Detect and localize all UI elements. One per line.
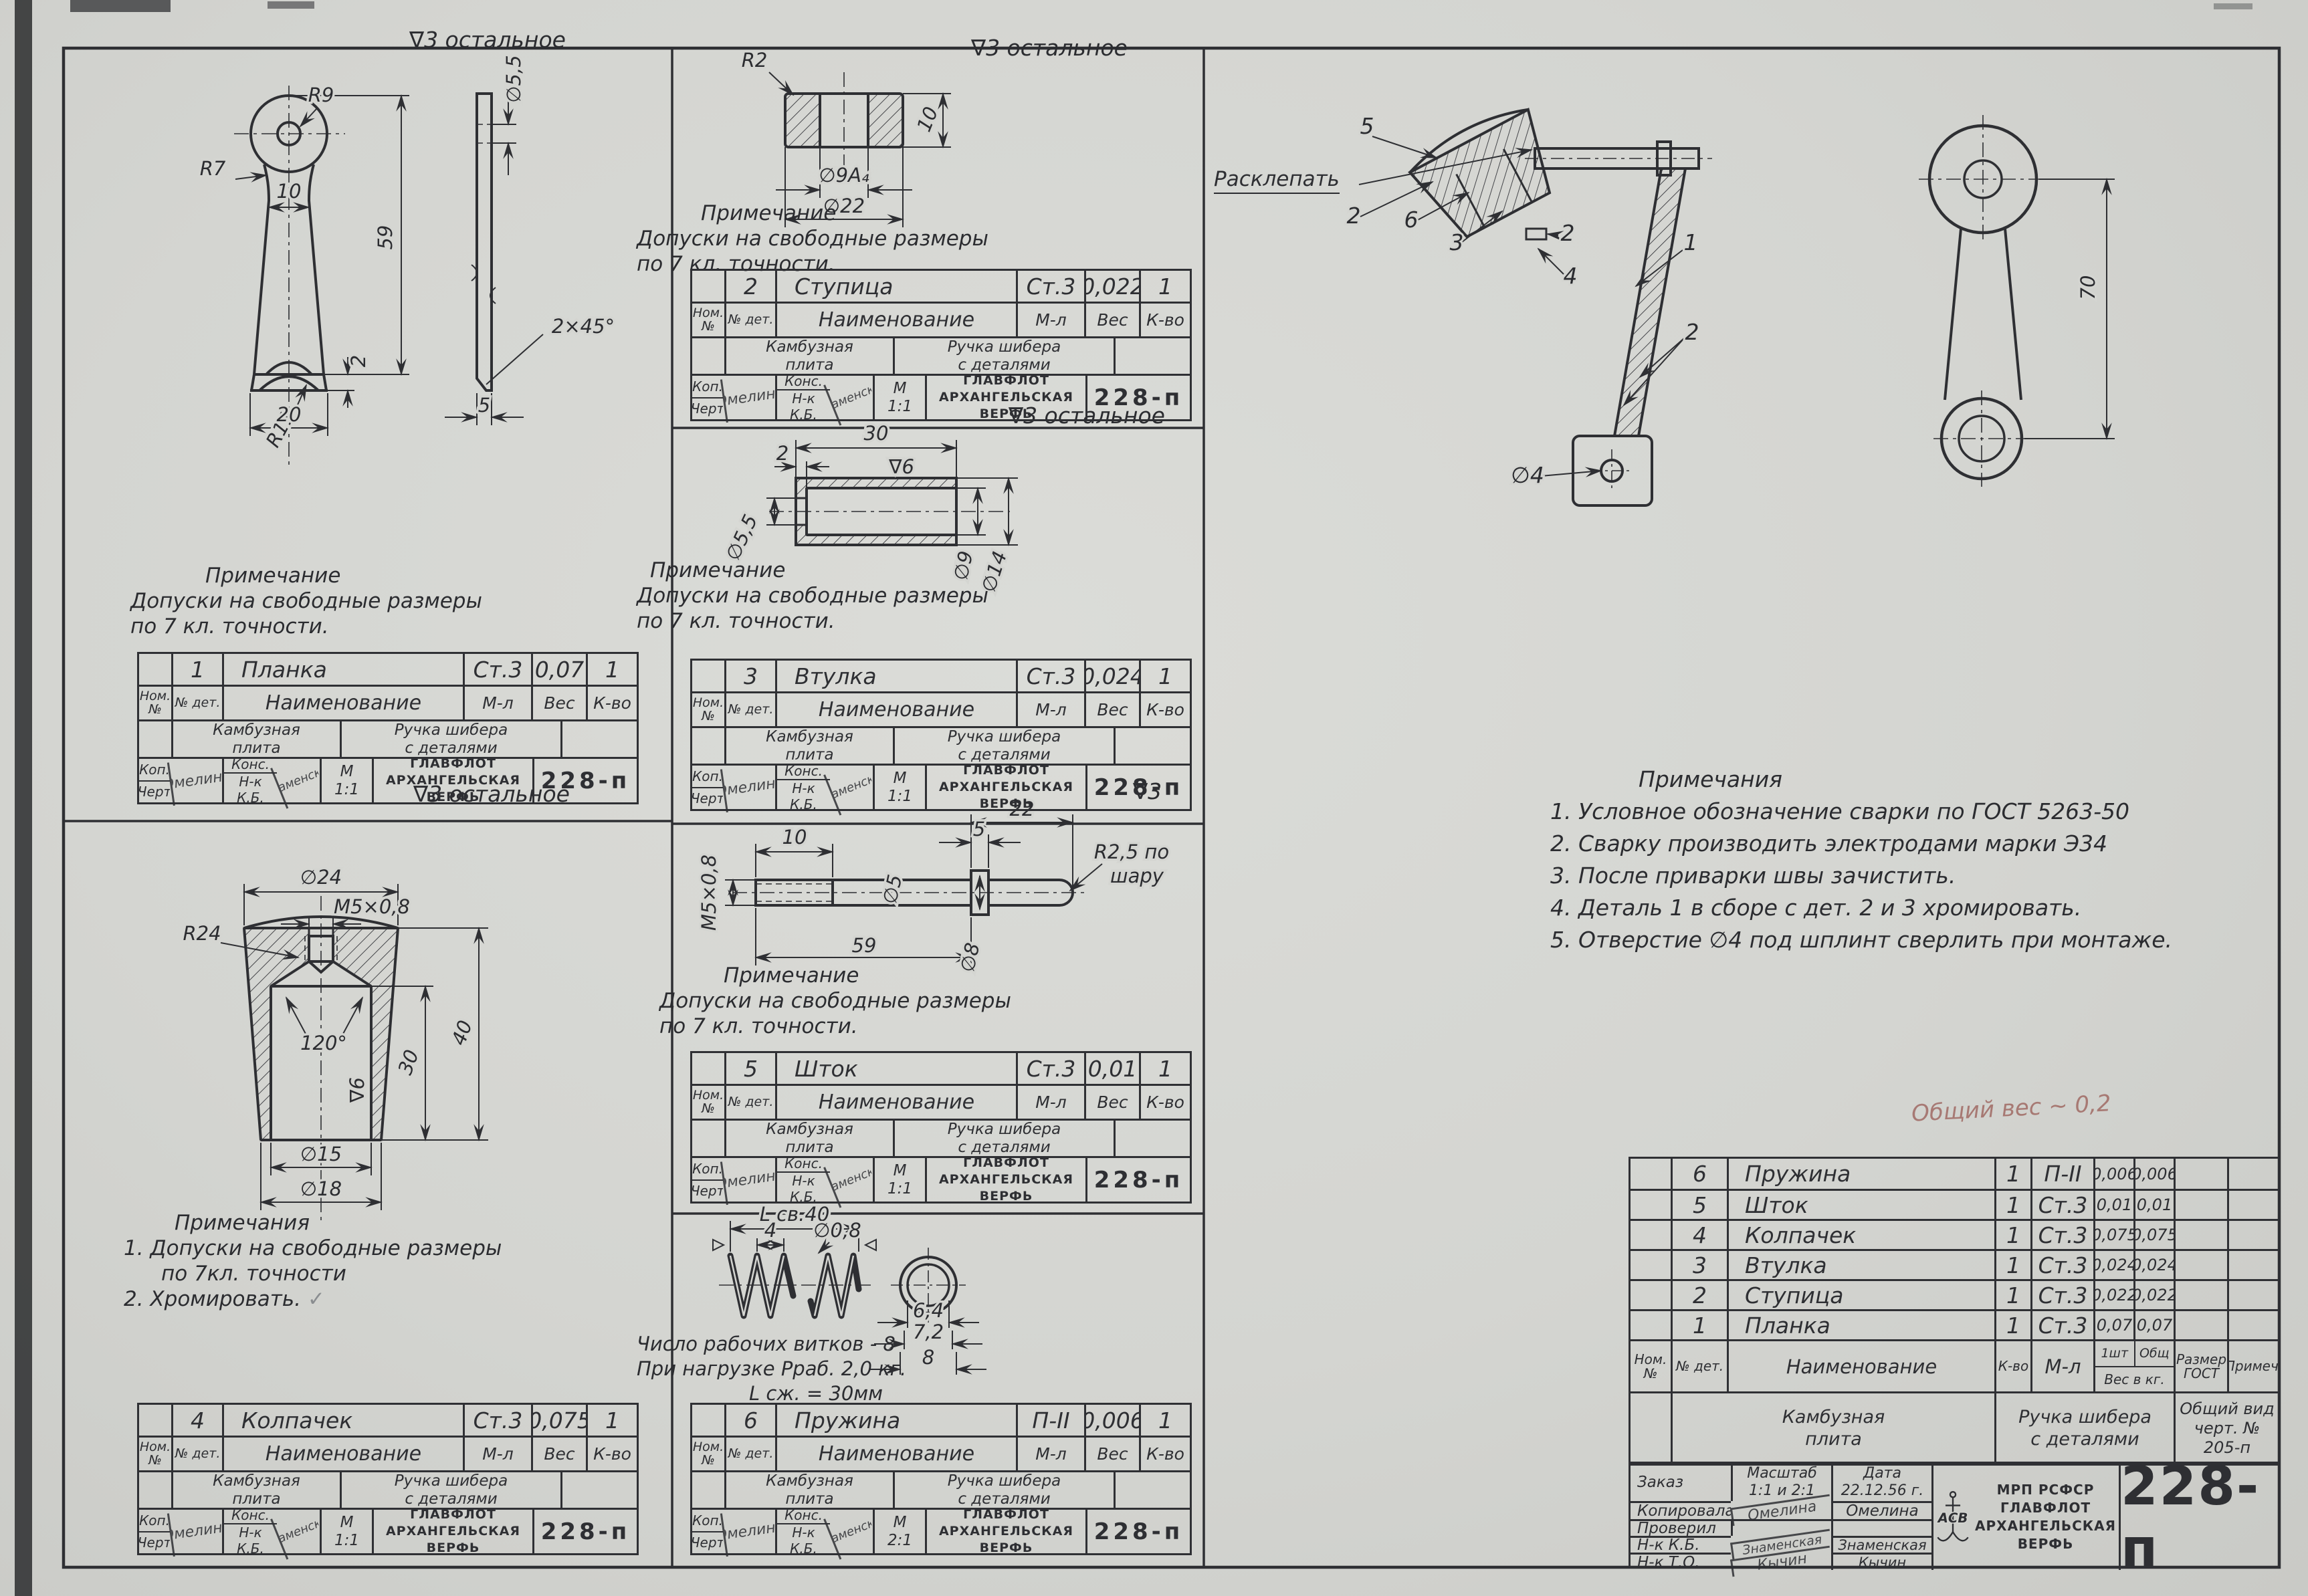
assembly-cell: Ручка шиберас деталями [340,721,560,757]
part-qty: 1 [1139,1405,1190,1436]
scale-value: 1:1 [887,1180,912,1198]
parts-list-row: 4 Колпачек 1 Ст.3 0,075 0,075 [1631,1219,2279,1249]
finish-note-left: ∇3 остальное [409,27,566,53]
row-ves1: 0,01 [2093,1191,2133,1219]
signature-kop: Омелина [720,762,778,812]
note-item-text: 2. Хромировать. [124,1287,301,1311]
role-kons: Конс. [777,766,830,779]
cell-empty [139,721,171,757]
col-nom: Ном. № [139,1438,171,1470]
part-table-kolpachek: 4 Колпачек Ст.3 0,075 1 Ном. № № дет. На… [137,1403,639,1555]
dim-shtok-ball-2: шару [1110,865,1164,887]
assembly-cell: Ручка шиберас деталями [340,1472,560,1508]
dim-asm-d4: ∅4 [1511,462,1544,488]
col-nom: Ном. № [692,1086,724,1119]
drawing-code: 228-п [1085,376,1190,419]
org-line1: ГЛАВФЛОТ [963,1158,1049,1171]
part-weight: 0,022 [1084,271,1139,302]
dim-pruzhina-pitch: 4 [764,1219,776,1242]
drawing-code: 228-п [1085,1158,1190,1202]
project-line1: Камбузная [766,338,853,356]
org-line2: АРХАНГЕЛЬСКАЯ [939,1171,1073,1188]
col-name: Наименование [775,1086,1016,1119]
dim-planka-thk: 5 [478,394,490,417]
parts-list-row: 2 Ступица 1 Ст.3 0,022 0,022 [1631,1279,2279,1309]
col-material: М-л [463,1438,531,1470]
dim-stupitsa-bore: ∅9А₄ [819,164,869,187]
org-line3: ВЕРФЬ [980,1540,1033,1553]
parts-list: 6 Пружина 1 П-II 0,006 0,006 5 Шток 1 Ст… [1629,1157,2281,1466]
row-ves1: 0,07 [2093,1311,2133,1339]
project-cell: Камбузнаяплита [171,1472,340,1508]
dim-shtok-l1: 10 [782,826,807,848]
drawing-number: 228-п [2119,1464,2281,1570]
col-det: № дет. [724,1438,775,1470]
dim-kolpachek-od: ∅24 [300,866,342,889]
hdr-nom: Ном. № [1631,1341,1671,1391]
finish-mark-kolpachek: ∇6 [346,1077,369,1103]
row-qty: 1 [1994,1251,2030,1279]
org-line2: АРХАНГЕЛЬСКАЯ [939,1523,1073,1540]
cell-empty [1114,1121,1190,1156]
assembly-cell: Ручка шиберас деталями [893,338,1114,374]
org-cell: ГЛАВФЛОТАРХАНГЕЛЬСКАЯВЕРФЬ [925,766,1085,809]
project-cell: Камбузнаяплита [171,721,340,757]
hdr-ves-obshch: Общ [2134,1341,2174,1366]
col-weight: Вес [1084,1086,1139,1119]
col-det: № дет. [171,687,222,719]
note-item: 2. Хромировать. ✓ [124,1286,502,1312]
note-line: Допуски на свободные размеры [659,988,1011,1014]
hdr-primech: Примеч. [2227,1341,2279,1391]
dim-shtok-d: ∅5 [878,873,906,906]
part-table-vtulka: 3 Втулка Ст.3 0,024 1 Ном. № № дет. Наим… [690,659,1192,811]
note-title: Примечание [205,563,482,588]
part-material: Ст.3 [463,654,531,685]
drawing-code: 228-п [532,759,637,802]
dim-planka-neck: 10 [277,180,302,203]
row-det: 5 [1671,1191,1727,1219]
role-kons: Конс. [777,1510,830,1523]
col-weight: Вес [1084,1438,1139,1470]
row-nkto-label: Н-к Т.О. [1631,1553,1731,1570]
org-line3: ВЕРФЬ [1975,1535,2116,1553]
col-name: Наименование [222,687,463,719]
row-ves2: 0,075 [2133,1221,2174,1249]
hdr-qty: К-во [1994,1341,2030,1391]
row-det: 4 [1671,1221,1727,1249]
row-name: Колпачек [1727,1221,1994,1249]
signature-kop: Омелина [720,1506,778,1557]
note-shtok: Примечание Допуски на свободные размеры … [659,963,1011,1039]
hdr-det: № дет. [1671,1341,1727,1391]
role-col: Коп.Черт [692,1158,723,1202]
scale-cell: М1:1 [873,1158,925,1202]
part-material: Ст.3 [1016,1053,1084,1084]
note-item: 1. Допуски на свободные размеры [124,1236,502,1261]
note-line: по 7 кл. точности. [130,614,482,639]
col-qty: К-во [1139,1086,1190,1119]
row-qty: 1 [1994,1281,2030,1309]
row-mat: Ст.3 [2030,1281,2093,1309]
scale-value: 1:1 [334,1532,359,1549]
assembly-cell: Ручка шиберас деталями [893,1121,1114,1156]
row-ves2: 0,07 [2133,1311,2174,1339]
col-weight: Вес [531,1438,586,1470]
role-col: Коп.Черт [139,759,170,802]
org-name: МРП РСФСР ГЛАВФЛОТ АРХАНГЕЛЬСКАЯ ВЕРФЬ [1975,1481,2116,1553]
col-qty: К-во [1139,1438,1190,1470]
role-col: Коп.Черт [692,766,723,809]
note-title: Примечания [175,1210,502,1236]
callout-1: 1 [1684,229,1698,255]
org-cell: ГЛАВФЛОТАРХАНГЕЛЬСКАЯВЕРФЬ [925,376,1085,419]
part-name: Колпачек [222,1405,463,1436]
view-line1: Общий вид [2180,1399,2274,1419]
view-name: Общий видчерт. № 205-п [2174,1393,2279,1464]
project-line2: плита [1805,1429,1862,1450]
role-col2: Конс.Н-к К.Б. [222,1510,277,1553]
org-line3: ВЕРФЬ [980,796,1033,809]
scale-m: М [894,380,907,397]
part-name: Пружина [775,1405,1016,1436]
row-name: Шток [1727,1191,1994,1219]
org-cell: ГЛАВФЛОТАРХАНГЕЛЬСКАЯВЕРФЬ [372,759,532,802]
org-line1: ГЛАВФЛОТ [963,766,1049,779]
part-qty: 1 [1139,1053,1190,1084]
role-kop: Коп. [692,1158,723,1179]
kolpachek-drawing: ∅24 М5×0,8 R24 120° 30 40 ∅15 ∅18 ∇6 [183,866,488,1224]
org-line3: ВЕРФЬ [427,789,480,802]
hdr-razmer-l1: Размер [2176,1353,2226,1367]
note-item: по 7кл. точности [161,1261,502,1286]
scale-m: М [894,1162,907,1179]
project-name: Камбузнаяплита [1671,1393,1994,1464]
scale-cell: М1:1 [320,759,372,802]
dim-shtok-thread: М5×0,8 [698,854,720,931]
role-col2: Конс.Н-к К.Б. [775,1510,830,1553]
org-cell: ГЛАВФЛОТАРХАНГЕЛЬСКАЯВЕРФЬ [925,1510,1085,1553]
org-line2: АРХАНГЕЛЬСКАЯ [939,779,1073,796]
role-chert: Черт [139,780,170,803]
col-qty: К-во [586,687,637,719]
role-col: Коп.Черт [692,376,723,419]
scale-m: М [340,1514,354,1531]
org-logo-cell: АСВ МРП РСФСР ГЛАВФЛОТ АРХАНГЕЛЬСКАЯ ВЕР… [1931,1464,2119,1570]
assembly-side-view: 70 [1919,115,2115,487]
project-line2: плита [232,739,280,757]
part-table-stupitsa: 2 Ступица Ст.3 0,022 1 Ном. № № дет. Наи… [690,269,1192,421]
cell-empty [692,661,724,691]
org-line2: АРХАНГЕЛЬСКАЯ [386,1523,520,1540]
role-kons: Конс. [777,376,830,389]
row-kopiroval-name: Омелина [1831,1501,1931,1519]
role-kop: Коп. [692,766,723,787]
title-block: Заказ Масштаб1:1 и 2:1 Дата22.12.56 г. К… [1629,1462,2281,1568]
note-vtulka: Примечание Допуски на свободные размеры … [637,558,988,634]
part-num: 1 [171,654,222,685]
project-line1: Камбузная [213,721,300,739]
asv-logo-anchor: АСВ [1936,1470,1970,1564]
part-name: Шток [775,1053,1016,1084]
org-cell: ГЛАВФЛОТАРХАНГЕЛЬСКАЯВЕРФЬ [372,1510,532,1553]
role-kons: Конс. [777,1158,830,1171]
cell-empty [692,728,724,764]
col-nom: Ном. № [139,687,171,719]
note-spring: Число рабочих витков - 8 При нагрузке Рр… [637,1332,906,1406]
role-kop: Коп. [692,376,723,397]
dim-kolpachek-r24: R24 [183,922,221,945]
role-nk-kb: Н-к К.Б. [224,1523,277,1554]
project-line2: плита [785,356,833,374]
zakaz-cell: Заказ [1631,1464,1731,1501]
col-material: М-л [1016,693,1084,726]
view-line2: черт. № 205-п [2176,1419,2279,1458]
project-line1: Камбузная [766,1121,853,1138]
row-det: 2 [1671,1281,1727,1309]
row-qty: 1 [1994,1159,2030,1189]
row-nkkb-name: Знаменская [1831,1536,1931,1553]
dim-kolpachek-d2: ∅18 [300,1177,342,1200]
cell-empty [1114,1472,1190,1508]
row-mat: П-II [2030,1159,2093,1189]
row-name: Втулка [1727,1251,1994,1279]
dim-shtok-len: 59 [852,934,877,957]
part-name: Ступица [775,271,1016,302]
assembly-line1: Ручка шибера [948,1121,1061,1138]
hdr-mat: М-л [2030,1341,2093,1391]
assembly-line2: с деталями [958,1139,1050,1156]
dim-pruzhina-wire: ∅0,8 [813,1219,861,1242]
assembly-line1: Ручка шибера [948,1472,1061,1490]
signature-kop: Омелина [167,756,225,806]
row-name: Пружина [1727,1159,1994,1189]
org-line1: ГЛАВФЛОТ [963,376,1049,389]
row-name: Ступица [1727,1281,1994,1309]
role-nk-kb: Н-к К.Б. [777,779,830,810]
org-line1: ГЛАВФЛОТ [963,1510,1049,1523]
cell-empty [560,721,637,757]
part-material: Ст.3 [1016,271,1084,302]
parts-list-project-row: Камбузнаяплита Ручка шиберас деталями Об… [1631,1391,2279,1464]
col-nom: Ном. № [692,693,724,726]
role-col2: Конс.Н-к К.Б. [222,759,277,802]
role-chert: Черт [139,1531,170,1554]
row-qty: 1 [1994,1311,2030,1339]
row-proveril-name [1831,1519,1931,1536]
row-kopiroval-label: Копировала [1631,1501,1731,1519]
col-material: М-л [1016,1438,1084,1470]
parts-list-row: 6 Пружина 1 П-II 0,006 0,006 [1631,1159,2279,1189]
hdr-ves: 1штОбщ Вес в кг. [2093,1341,2174,1391]
part-name: Втулка [775,661,1016,691]
project-line1: Камбузная [1782,1407,1885,1428]
hdr-razmer-l2: ГОСТ [2184,1367,2219,1381]
org-line1: ГЛАВФЛОТ [1975,1499,2116,1517]
masshtab-label: Масштаб [1747,1465,1817,1482]
blueprint-sheet: R9 R7 10 59 2 R11 20 ∅5,5 2×45° 5 [0,0,2308,1596]
callout-3: 3 [1450,229,1464,255]
cell-empty [139,654,171,685]
row-ves2: 0,006 [2133,1159,2174,1189]
assembly-line2: с деталями [958,746,1050,764]
role-kons: Конс. [224,1510,277,1523]
row-ves1: 0,006 [2093,1159,2133,1189]
scale-value: 1:1 [887,398,912,415]
part-table-shtok: 5 Шток Ст.3 0,01 1 Ном. № № дет. Наимено… [690,1051,1192,1204]
row-det: 1 [1671,1311,1727,1339]
row-mat: Ст.3 [2030,1221,2093,1249]
part-material: Ст.3 [1016,661,1084,691]
row-det: 3 [1671,1251,1727,1279]
row-mat: Ст.3 [2030,1251,2093,1279]
project-line2: плита [232,1490,280,1508]
col-name: Наименование [775,304,1016,336]
row-nkto-name: Кычин [1831,1553,1931,1570]
role-col: Коп.Черт [139,1510,170,1553]
drawing-code: 228-п [1085,766,1190,809]
dim-shtok-ball-1: R2,5 по [1094,840,1169,863]
assembly-name: Ручка шиберас деталями [1994,1393,2174,1464]
part-qty: 1 [1139,271,1190,302]
org-line0: МРП РСФСР [1975,1481,2116,1499]
col-nom: Ном. № [692,304,724,336]
project-line1: Камбузная [766,1472,853,1490]
note-item: 4. Деталь 1 в сборе с дет. 2 и 3 хромиро… [1550,892,2172,924]
cell-empty [692,1053,724,1084]
assembly-cell: Ручка шиберас деталями [893,1472,1114,1508]
cell-empty [692,1405,724,1436]
row-qty: 1 [1994,1221,2030,1249]
signature-kop: Омелина [167,1506,225,1557]
dim-planka-base: 20 [277,403,302,426]
finish-note-stupitsa: ∇3 остальное [971,35,1128,61]
assembly-section-view: 5 2 6 3 2 4 1 2 ∅4 [1347,99,1713,505]
col-name: Наименование [222,1438,463,1470]
row-nkkb-label: Н-к К.Б. [1631,1536,1731,1553]
col-qty: К-во [1139,693,1190,726]
assembly-line2: с деталями [2030,1429,2139,1450]
parts-list-row: 1 Планка 1 Ст.3 0,07 0,07 [1631,1309,2279,1339]
part-weight: 0,024 [1084,661,1139,691]
role-nk-kb: Н-к К.Б. [777,389,830,420]
role-col2: Конс.Н-к К.Б. [775,376,830,419]
dim-planka-r9: R9 [308,84,334,106]
role-col2: Конс.Н-к К.Б. [775,1158,830,1202]
part-num: 4 [171,1405,222,1436]
org-cell: ГЛАВФЛОТАРХАНГЕЛЬСКАЯВЕРФЬ [925,1158,1085,1202]
part-num: 5 [724,1053,775,1084]
scale-value: 1:1 [887,788,912,805]
note-line: При нагрузке Рраб. 2,0 кг. [637,1357,906,1381]
dim-kolpachek-h2: 40 [447,1017,477,1048]
part-num: 6 [724,1405,775,1436]
org-line2: АРХАНГЕЛЬСКАЯ [939,389,1073,406]
role-col: Коп.Черт [692,1510,723,1553]
dim-planka-t2: 2 [347,355,370,367]
row-ves1: 0,024 [2093,1251,2133,1279]
dim-stupitsa-r2: R2 [742,49,768,72]
dim-kolpachek-d1: ∅15 [300,1143,342,1165]
parts-list-row: 5 Шток 1 Ст.3 0,01 0,01 [1631,1189,2279,1219]
role-chert: Черт [692,1179,723,1202]
col-weight: Вес [1084,693,1139,726]
note-title: Примечание [701,201,988,226]
callout-6: 6 [1404,207,1419,233]
assembly-line1: Ручка шибера [948,728,1061,746]
cell-empty [692,1121,724,1156]
project-cell: Камбузнаяплита [724,1121,893,1156]
date-label: Дата [1863,1465,1901,1482]
part-weight: 0,075 [531,1405,586,1436]
col-name: Наименование [775,1438,1016,1470]
finish-mark-vtulka: ∇6 [888,455,914,478]
part-table-pruzhina: 6 Пружина П-II 0,006 1 Ном. № № дет. Наи… [690,1403,1192,1555]
role-nk-kb: Н-к К.Б. [777,1171,830,1202]
note-item: 5. Отверстие ∅4 под шплинт сверлить при … [1550,924,2172,956]
scale-m: М [894,1514,907,1531]
row-mat: Ст.3 [2030,1311,2093,1339]
scale-cell: М2:1 [873,1510,925,1553]
col-qty: К-во [586,1438,637,1470]
dim-planka-len: 59 [374,225,397,250]
callout-2a: 2 [1347,203,1361,229]
row-name: Планка [1727,1311,1994,1339]
hdr-ves-kg: Вес в кг. [2095,1367,2174,1392]
note-assembly: Примечания 1. Условное обозначение сварк… [1550,764,2172,956]
dim-shtok-w: 5 [973,818,985,840]
role-chert: Черт [692,1531,723,1554]
dim-planka-hole: ∅5,5 [502,55,525,102]
cell-empty [692,271,724,302]
note-title: Примечание [724,963,1011,988]
scale-value: 2:1 [887,1532,912,1549]
role-chert: Черт [692,397,723,420]
org-line2: АРХАНГЕЛЬСКАЯ [1975,1517,2116,1535]
row-qty: 1 [1994,1191,2030,1219]
note-line: Допуски на свободные размеры [130,588,482,614]
note-line: Допуски на свободные размеры [637,583,988,608]
note-item: 2. Сварку производить электродами марки … [1550,828,2172,860]
dim-vtulka-d1: ∅5,5 [721,511,762,564]
asv-logo-letters: АСВ [1937,1510,1968,1526]
col-det: № дет. [724,1086,775,1119]
part-num: 3 [724,661,775,691]
role-kop: Коп. [139,759,170,780]
scale-cell: М1:1 [320,1510,372,1553]
part-qty: 1 [586,1405,637,1436]
part-weight: 0,07 [531,654,586,685]
signature-kb: Знаменская [823,1151,879,1208]
part-num: 2 [724,271,775,302]
hdr-ves-1sht: 1шт [2095,1341,2134,1366]
signature-kb: Знаменская [823,759,879,815]
parts-list-header: Ном. № № дет. Наименование К-во М-л 1штО… [1631,1339,2279,1391]
signature-kop: Омелина [720,372,778,423]
project-cell: Камбузнаяплита [724,1472,893,1508]
row-ves1: 0,075 [2093,1221,2133,1249]
col-det: № дет. [171,1438,222,1470]
drawing-code: 228-п [1085,1510,1190,1553]
dim-kolpachek-angle: 120° [300,1032,347,1054]
part-qty: 1 [586,654,637,685]
scale-cell: М1:1 [873,376,925,419]
role-kons: Конс. [224,759,277,772]
role-col2: Конс.Н-к К.Б. [775,766,830,809]
date-cell: Дата22.12.56 г. [1831,1464,1931,1501]
col-name: Наименование [775,693,1016,726]
signature-kb: Знаменская [823,1503,879,1559]
